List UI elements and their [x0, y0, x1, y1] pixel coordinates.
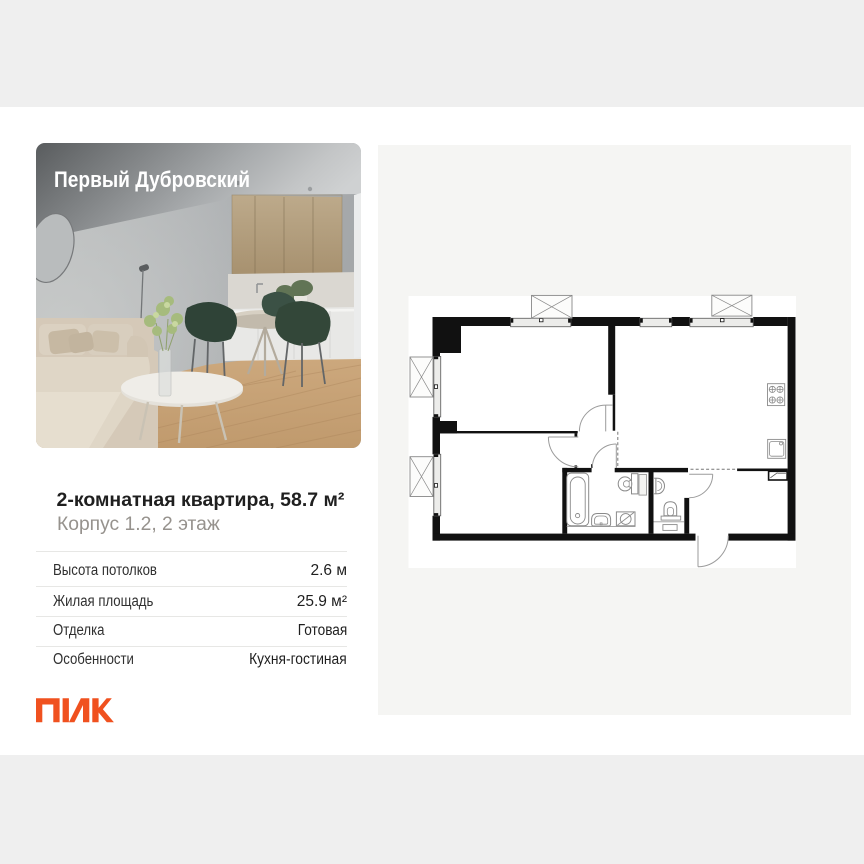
svg-text:Первый Дубровский: Первый Дубровский — [54, 167, 250, 192]
